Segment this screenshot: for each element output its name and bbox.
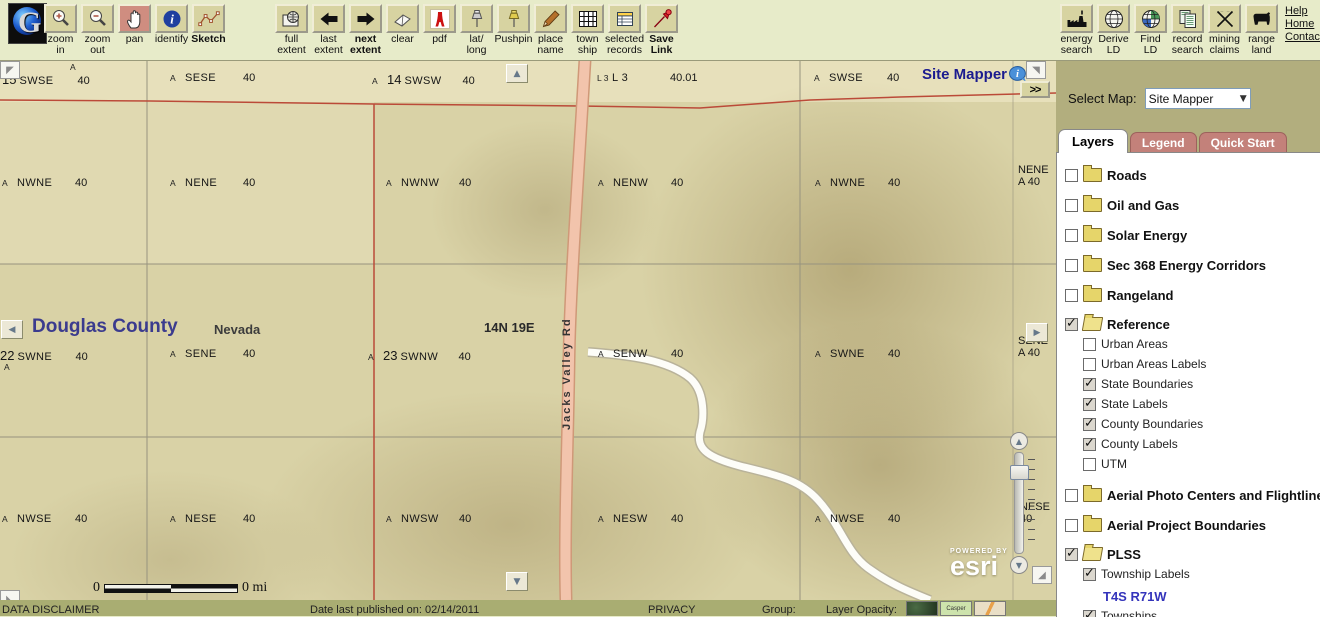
checked-checkbox[interactable] xyxy=(1083,418,1096,431)
energy-search-icon xyxy=(1060,4,1093,33)
layer-row-urban-areas[interactable]: Urban Areas xyxy=(1083,336,1168,352)
topo-thumb-label: Casper xyxy=(946,606,965,612)
layer-label-roads: Roads xyxy=(1107,168,1147,183)
layer-label-reference: Reference xyxy=(1107,317,1170,332)
layer-row-rangeland[interactable]: Rangeland xyxy=(1065,287,1173,303)
unchecked-checkbox[interactable] xyxy=(1065,489,1078,502)
quarter-quarter-name: SWNE xyxy=(830,348,888,360)
checked-checkbox[interactable] xyxy=(1065,548,1078,561)
range-land-button-label: rangeland xyxy=(1248,34,1275,56)
layer-label-county-labels: County Labels xyxy=(1101,437,1178,451)
map-viewport[interactable]: 15SWSE40ASESE40A14SWSW40L 3L 340.01ASWSE… xyxy=(0,60,1056,600)
clear-button-label: clear xyxy=(391,34,414,45)
zoom-slider-track[interactable] xyxy=(1014,452,1024,554)
layer-row-aerial-photo-centers-and-flightlines[interactable]: Aerial Photo Centers and Flightlines xyxy=(1065,487,1320,503)
panel-tabs: LayersLegendQuick Start xyxy=(1058,131,1289,153)
acreage-value: 40 xyxy=(243,177,255,189)
layer-label-aerial-project-boundaries: Aerial Project Boundaries xyxy=(1107,518,1266,533)
pan-left-button[interactable]: ◀ xyxy=(1,320,23,339)
layer-row-plss[interactable]: PLSS xyxy=(1065,546,1141,562)
place-name-button[interactable]: placename xyxy=(532,4,569,56)
unchecked-checkbox[interactable] xyxy=(1065,169,1078,182)
sketch-button[interactable]: Sketch xyxy=(190,4,227,45)
road-label: Jacks Valley Rd xyxy=(561,255,573,430)
record-search-button[interactable]: recordsearch xyxy=(1169,4,1206,56)
section-label: ASENW40 xyxy=(598,348,683,360)
zoom-in-button[interactable]: zoomin xyxy=(42,4,79,56)
pan-down-right-button[interactable]: ◢ xyxy=(1032,566,1052,584)
section-number: 23 xyxy=(383,348,397,363)
identify-button[interactable]: iidentify xyxy=(153,4,190,45)
quarter-quarter-name: SENW xyxy=(613,348,671,360)
unchecked-checkbox[interactable] xyxy=(1083,458,1096,471)
section-label: ASENE40 xyxy=(170,348,255,360)
scale-bar: 0 0 mi xyxy=(93,580,267,596)
layer-row-county-boundaries[interactable]: County Boundaries xyxy=(1083,416,1203,432)
lot-letter-mark: A xyxy=(70,62,76,72)
zoom-out-button[interactable]: zoomout xyxy=(79,4,116,56)
quarter-quarter-name: NWSE xyxy=(830,513,888,525)
derive-ld-button[interactable]: DeriveLD xyxy=(1095,4,1132,56)
zoom-slider: ▲ ▼ xyxy=(1006,432,1032,574)
logo-letter: G xyxy=(18,6,41,40)
unchecked-checkbox[interactable] xyxy=(1065,289,1078,302)
township-label: 14N 19E xyxy=(484,320,535,335)
quarter-quarter-name: NWNW xyxy=(401,177,459,189)
tab-legend[interactable]: Legend xyxy=(1130,132,1197,153)
folder-closed-icon[interactable] xyxy=(1083,518,1102,532)
link-help[interactable]: Help xyxy=(1285,5,1320,18)
pdf-button[interactable]: pdf xyxy=(421,4,458,45)
layer-row-state-labels[interactable]: State Labels xyxy=(1083,396,1168,412)
section-lot-letter: A xyxy=(598,178,613,188)
checked-checkbox[interactable] xyxy=(1083,378,1096,391)
record-search-icon xyxy=(1171,4,1204,33)
lat-long-icon xyxy=(460,4,493,33)
toolbar: G zoominzoomoutpaniidentifySketch fullex… xyxy=(0,0,1320,61)
layer-label-county-boundaries: County Boundaries xyxy=(1101,417,1203,431)
section-label: ANWSW40 xyxy=(386,513,471,525)
layer-tree: RoadsOil and GasSolar EnergySec 368 Ener… xyxy=(1056,152,1320,617)
acreage-value: 40 xyxy=(243,72,255,84)
layer-row-utm[interactable]: UTM xyxy=(1083,456,1127,472)
quarter-quarter-name: NENW xyxy=(613,177,671,189)
pan-up-right-button[interactable]: ◥ xyxy=(1026,61,1046,79)
quarter-quarter-name: SWNW xyxy=(400,351,458,363)
section-label: A14SWSW40 xyxy=(372,72,475,87)
acreage-value: 40 xyxy=(671,513,683,525)
acreage-value: 40 xyxy=(243,348,255,360)
unchecked-checkbox[interactable] xyxy=(1065,519,1078,532)
svg-text:i: i xyxy=(170,11,174,26)
section-lot-letter: A xyxy=(815,514,830,524)
section-lot-letter: A xyxy=(170,178,185,188)
layer-label-oil-and-gas: Oil and Gas xyxy=(1107,198,1179,213)
quarter-quarter-name: SWSE xyxy=(829,72,887,84)
next-extent-icon xyxy=(349,4,382,33)
layer-row-solar-energy[interactable]: Solar Energy xyxy=(1065,227,1187,243)
identify-icon: i xyxy=(155,4,188,33)
record-search-button-label: recordsearch xyxy=(1172,34,1204,56)
selected-records-button-label: selectedrecords xyxy=(605,34,644,56)
select-map-label: Select Map: xyxy=(1068,91,1137,106)
pan-up-left-button[interactable]: ◤ xyxy=(0,61,20,79)
side-panel: Select Map: Site Mapper ▼ LayersLegendQu… xyxy=(1056,60,1320,616)
place-name-button-label: placename xyxy=(537,34,563,56)
folder-closed-icon[interactable] xyxy=(1083,198,1102,212)
lat-long-button[interactable]: lat/long xyxy=(458,4,495,56)
basemap-streets-thumbnail[interactable] xyxy=(974,601,1006,616)
pan-icon xyxy=(118,4,151,33)
svg-text:i: i xyxy=(1016,69,1019,80)
folder-closed-icon[interactable] xyxy=(1083,168,1102,182)
unchecked-checkbox[interactable] xyxy=(1083,358,1096,371)
pan-right-button[interactable]: ▶ xyxy=(1026,323,1048,342)
map-select-dropdown[interactable]: Site Mapper ▼ xyxy=(1145,88,1251,109)
acreage-value: 40 xyxy=(77,75,89,87)
map-select-value: Site Mapper xyxy=(1149,92,1214,106)
layer-row-aerial-project-boundaries[interactable]: Aerial Project Boundaries xyxy=(1065,517,1266,533)
quarter-quarter-name: NESE xyxy=(185,513,243,525)
layer-label-urban-areas: Urban Areas xyxy=(1101,337,1168,351)
edge-section-label: NENEA 40 xyxy=(1018,164,1049,188)
layer-label-utm: UTM xyxy=(1101,457,1127,471)
section-lot-letter: A xyxy=(386,178,401,188)
zoom-in-icon xyxy=(44,4,77,33)
layer-row-sec-368-energy-corridors[interactable]: Sec 368 Energy Corridors xyxy=(1065,257,1266,273)
unchecked-checkbox[interactable] xyxy=(1065,229,1078,242)
last-extent-button-label: lastextent xyxy=(314,34,343,56)
layer-row-state-boundaries[interactable]: State Boundaries xyxy=(1083,376,1193,392)
white-road xyxy=(588,352,930,600)
section-lot-letter: A xyxy=(170,514,185,524)
acreage-value: 40 xyxy=(458,351,470,363)
unchecked-checkbox[interactable] xyxy=(1065,199,1078,212)
scale-right-label: 0 mi xyxy=(242,580,267,596)
clear-button[interactable]: clear xyxy=(384,4,421,45)
scale-left-label: 0 xyxy=(93,580,100,596)
pushpin-icon xyxy=(497,4,530,33)
layer-row-t4s-r71w[interactable]: T4S R71W xyxy=(1103,588,1167,604)
place-name-icon xyxy=(534,4,567,33)
folder-closed-icon[interactable] xyxy=(1083,228,1102,242)
layer-label-urban-areas-labels: Urban Areas Labels xyxy=(1101,357,1206,371)
acreage-value: 40 xyxy=(459,513,471,525)
save-link-button-label: SaveLink xyxy=(649,34,674,56)
layer-label-state-labels: State Labels xyxy=(1101,397,1168,411)
zoom-out-button-label: zoomout xyxy=(85,34,111,56)
acreage-value: 40 xyxy=(243,513,255,525)
section-lot-letter: A xyxy=(2,514,17,524)
panel-expand-button[interactable]: >> xyxy=(1020,81,1050,98)
section-lot-letter: A xyxy=(598,514,613,524)
quarter-quarter-name: L 3 xyxy=(612,72,670,84)
section-label: ANENE40 xyxy=(170,177,255,189)
pan-up-button[interactable]: ▲ xyxy=(506,64,528,83)
acreage-value: 40 xyxy=(888,348,900,360)
sketch-icon xyxy=(192,4,225,33)
pushpin-button[interactable]: Pushpin xyxy=(495,4,532,45)
chevron-down-icon: ▼ xyxy=(1240,94,1247,104)
section-label: ASESE40 xyxy=(170,72,255,84)
section-label: ASWSE40 xyxy=(814,72,899,84)
checked-checkbox[interactable] xyxy=(1065,318,1078,331)
quarter-quarter-name: SWSE xyxy=(19,75,77,87)
checked-checkbox[interactable] xyxy=(1083,568,1096,581)
section-lot-letter: L 3 xyxy=(597,73,612,83)
acreage-value: 40 xyxy=(888,513,900,525)
toolbar-group-actions: fullextentlastextentnextextentclearpdfla… xyxy=(273,4,680,56)
quarter-quarter-name: SESE xyxy=(185,72,243,84)
quarter-quarter-name: NESW xyxy=(613,513,671,525)
mining-claims-button[interactable]: miningclaims xyxy=(1206,4,1243,56)
lot-letter-mark: A xyxy=(4,362,10,372)
section-number: 22 xyxy=(0,348,14,363)
pushpin-button-label: Pushpin xyxy=(495,34,533,45)
layer-label-sec-368-energy-corridors: Sec 368 Energy Corridors xyxy=(1107,258,1266,273)
zoom-out-icon xyxy=(81,4,114,33)
layer-row-county-labels[interactable]: County Labels xyxy=(1083,436,1178,452)
section-label: ANESE40 xyxy=(170,513,255,525)
range-land-button[interactable]: rangeland xyxy=(1243,4,1280,56)
acreage-value: 40 xyxy=(75,513,87,525)
full-extent-button-label: fullextent xyxy=(277,34,306,56)
quarter-quarter-name: SENE xyxy=(185,348,243,360)
quarter-quarter-name: SWSW xyxy=(404,75,462,87)
toolbar-group-navigation: zoominzoomoutpaniidentifySketch xyxy=(42,4,227,56)
layer-row-township-labels[interactable]: Township Labels xyxy=(1083,566,1190,582)
township-icon xyxy=(571,4,604,33)
statusbar-data-disclaimer[interactable]: DATA DISCLAIMER xyxy=(2,604,99,616)
last-extent-icon xyxy=(312,4,345,33)
state-label: Nevada xyxy=(214,322,260,337)
acreage-value: 40 xyxy=(671,348,683,360)
statusbar-layer-opacity-: Layer Opacity: xyxy=(826,604,897,616)
acreage-value: 40 xyxy=(75,351,87,363)
scale-bar-graphic xyxy=(104,584,238,593)
next-extent-button[interactable]: nextextent xyxy=(347,4,384,56)
acreage-value: 40 xyxy=(671,177,683,189)
folder-closed-icon[interactable] xyxy=(1083,258,1102,272)
pdf-button-label: pdf xyxy=(432,34,447,45)
toolbar-links: HelpHomeContact xyxy=(1285,5,1320,44)
range-land-icon xyxy=(1245,4,1278,33)
pan-down-button[interactable]: ▼ xyxy=(506,572,528,591)
select-map-row: Select Map: Site Mapper ▼ xyxy=(1068,88,1251,109)
find-ld-button-label: FindLD xyxy=(1140,34,1160,56)
edge-label-line2: A 40 xyxy=(1018,176,1049,188)
map-title-wrap: Site Mapper i xyxy=(922,66,1028,88)
section-label: L 3L 340.01 xyxy=(597,72,698,84)
energy-search-button[interactable]: energysearch xyxy=(1058,4,1095,56)
zoom-in-button-label: zoomin xyxy=(48,34,74,56)
section-lot-letter: A xyxy=(170,349,185,359)
esri-logo: POWERED BY esri xyxy=(950,548,1008,577)
quarter-quarter-name: NWNE xyxy=(17,177,75,189)
find-ld-button[interactable]: FindLD xyxy=(1132,4,1169,56)
section-lot-letter: A xyxy=(2,178,17,188)
unchecked-checkbox[interactable] xyxy=(1065,259,1078,272)
sketch-button-label: Sketch xyxy=(191,34,225,45)
section-label: ASWNE40 xyxy=(815,348,900,360)
section-lot-letter: A xyxy=(814,73,829,83)
section-label: A23SWNW40 xyxy=(368,348,471,363)
pan-down-left-button[interactable]: ◣ xyxy=(0,590,20,600)
unchecked-checkbox[interactable] xyxy=(1083,338,1096,351)
county-label: Douglas County xyxy=(32,316,178,338)
zoom-slider-ticks xyxy=(1028,459,1035,549)
zoom-slider-handle[interactable] xyxy=(1010,465,1029,480)
esri-wordmark: esri xyxy=(950,555,1008,577)
selected-records-icon xyxy=(608,4,641,33)
checked-checkbox[interactable] xyxy=(1083,398,1096,411)
link-contact[interactable]: Contact xyxy=(1285,31,1320,44)
folder-closed-icon[interactable] xyxy=(1083,488,1102,502)
acreage-value: 40 xyxy=(888,177,900,189)
folder-closed-icon[interactable] xyxy=(1083,288,1102,302)
statusbar-date-last-published-on-02-14-2011: Date last published on: 02/14/2011 xyxy=(310,604,479,616)
section-lot-letter: A xyxy=(368,352,383,362)
township-boundary-horizontal xyxy=(0,93,1056,108)
layer-label-t4s-r71w: T4S R71W xyxy=(1103,589,1167,604)
layer-label-state-boundaries: State Boundaries xyxy=(1101,377,1193,391)
energy-search-button-label: energysearch xyxy=(1060,34,1092,56)
find-ld-icon xyxy=(1134,4,1167,33)
section-label: ANENW40 xyxy=(598,177,683,189)
checked-checkbox[interactable] xyxy=(1083,438,1096,451)
layer-label-township-labels: Township Labels xyxy=(1101,567,1190,581)
section-lot-letter: A xyxy=(815,349,830,359)
layer-label-rangeland: Rangeland xyxy=(1107,288,1173,303)
map-title: Site Mapper xyxy=(922,66,1007,83)
save-link-icon xyxy=(645,4,678,33)
section-label: ANWNE40 xyxy=(2,177,87,189)
acreage-value: 40 xyxy=(75,177,87,189)
lat-long-button-label: lat/long xyxy=(467,34,487,56)
layer-label-plss: PLSS xyxy=(1107,547,1141,562)
township-button-label: township xyxy=(576,34,598,56)
basemap-topo-thumbnail[interactable]: Casper xyxy=(940,601,972,616)
zoom-slider-up-button[interactable]: ▲ xyxy=(1010,432,1028,450)
quarter-quarter-name: SWNE xyxy=(17,351,75,363)
pan-button[interactable]: pan xyxy=(116,4,153,45)
layer-row-oil-and-gas[interactable]: Oil and Gas xyxy=(1065,197,1179,213)
derive-ld-icon xyxy=(1097,4,1130,33)
statusbar-group-: Group: xyxy=(762,604,796,616)
section-lot-letter: A xyxy=(386,514,401,524)
full-extent-icon xyxy=(275,4,308,33)
tab-layers[interactable]: Layers xyxy=(1058,129,1128,153)
identify-button-label: identify xyxy=(155,34,188,45)
section-label: ANWNE40 xyxy=(815,177,900,189)
selected-records-button[interactable]: selectedrecords xyxy=(606,4,643,56)
layer-row-reference[interactable]: Reference xyxy=(1065,316,1170,332)
link-home[interactable]: Home xyxy=(1285,18,1320,31)
derive-ld-button-label: DeriveLD xyxy=(1098,34,1128,56)
last-extent-button[interactable]: lastextent xyxy=(310,4,347,56)
township-button[interactable]: township xyxy=(569,4,606,56)
full-extent-button[interactable]: fullextent xyxy=(273,4,310,56)
zoom-slider-down-button[interactable]: ▼ xyxy=(1010,556,1028,574)
toolbar-group-search: energysearchDeriveLDFindLDrecordsearchmi… xyxy=(1058,4,1280,56)
folder-open-icon[interactable] xyxy=(1082,317,1103,331)
quarter-quarter-name: NWSE xyxy=(17,513,75,525)
status-bar: Casper DATA DISCLAIMERDate last publishe… xyxy=(0,600,1056,616)
acreage-value: 40.01 xyxy=(670,72,698,84)
quarter-quarter-name: NWNE xyxy=(830,177,888,189)
save-link-button[interactable]: SaveLink xyxy=(643,4,680,56)
section-lot-letter: A xyxy=(815,178,830,188)
quarter-quarter-name: NENE xyxy=(185,177,243,189)
quarter-quarter-name: NWSW xyxy=(401,513,459,525)
pan-button-label: pan xyxy=(126,34,144,45)
acreage-value: 40 xyxy=(462,75,474,87)
section-number: 14 xyxy=(387,72,401,87)
pdf-icon xyxy=(423,4,456,33)
acreage-value: 40 xyxy=(887,72,899,84)
acreage-value: 40 xyxy=(459,177,471,189)
section-lot-letter: A xyxy=(598,349,613,359)
section-label: ANESW40 xyxy=(598,513,683,525)
edge-label-line2: A 40 xyxy=(1018,347,1048,359)
section-label: 22SWNE40 xyxy=(0,348,88,363)
statusbar-privacy[interactable]: PRIVACY xyxy=(648,604,695,616)
layer-row-roads[interactable]: Roads xyxy=(1065,167,1147,183)
tab-quick-start[interactable]: Quick Start xyxy=(1199,132,1287,153)
edge-label-line1: NENE xyxy=(1018,164,1049,176)
section-label: ANWSE40 xyxy=(2,513,87,525)
layer-row-urban-areas-labels[interactable]: Urban Areas Labels xyxy=(1083,356,1206,372)
section-label: ANWNW40 xyxy=(386,177,471,189)
section-label: ANWSE40 xyxy=(815,513,900,525)
section-lot-letter: A xyxy=(372,76,387,86)
basemap-aerial-thumbnail[interactable] xyxy=(906,601,938,616)
section-lot-letter: A xyxy=(170,73,185,83)
mining-claims-icon xyxy=(1208,4,1241,33)
layer-label-aerial-photo-centers-and-flightlines: Aerial Photo Centers and Flightlines xyxy=(1107,488,1320,503)
mining-claims-button-label: miningclaims xyxy=(1209,34,1240,56)
clear-icon xyxy=(386,4,419,33)
folder-open-icon[interactable] xyxy=(1082,547,1103,561)
next-extent-button-label: nextextent xyxy=(350,34,381,56)
white-road-casing xyxy=(588,352,930,600)
layer-label-solar-energy: Solar Energy xyxy=(1107,228,1187,243)
